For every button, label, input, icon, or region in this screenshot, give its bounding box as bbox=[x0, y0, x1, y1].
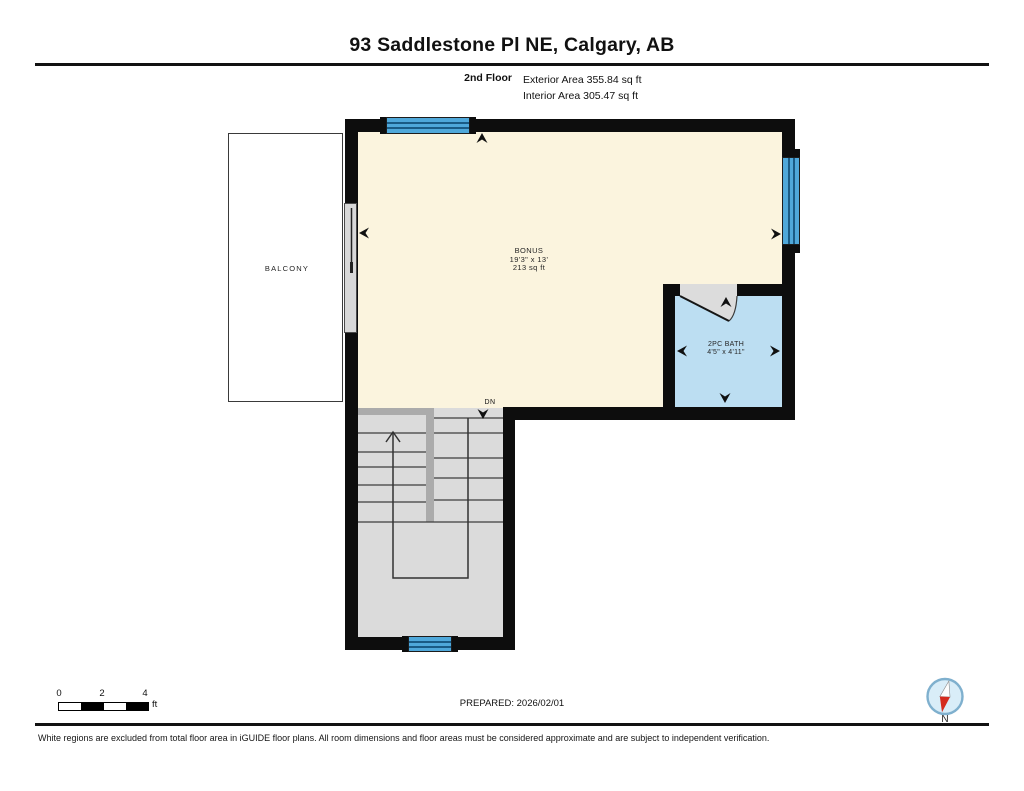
wall-segment bbox=[503, 407, 795, 420]
window-pane-line bbox=[788, 158, 790, 244]
page-title: 93 Saddlestone Pl NE, Calgary, AB bbox=[0, 34, 1024, 57]
bonus-room-label: BONUS 19'3" x 13' 213 sq ft bbox=[459, 247, 599, 273]
wall-segment bbox=[345, 119, 358, 650]
floor-plan-page: 93 Saddlestone Pl NE, Calgary, AB 2nd Fl… bbox=[0, 0, 1024, 791]
disclaimer-text: White regions are excluded from total fl… bbox=[38, 733, 998, 743]
compass-icon bbox=[922, 676, 968, 718]
room-area: 213 sq ft bbox=[459, 264, 599, 273]
window-frame bbox=[782, 245, 800, 253]
floor-name-label: 2nd Floor bbox=[0, 72, 512, 84]
exterior-area-label: Exterior Area 355.84 sq ft bbox=[523, 72, 641, 88]
prepared-date-label: PREPARED: 2026/02/01 bbox=[0, 698, 1024, 709]
window-pane-line bbox=[793, 158, 795, 244]
window-frame bbox=[452, 636, 458, 652]
balcony-label: BALCONY bbox=[227, 264, 347, 273]
window-pane-line bbox=[409, 641, 451, 643]
footer-divider bbox=[35, 723, 989, 726]
wall-segment bbox=[503, 420, 515, 650]
wall-segment bbox=[663, 284, 680, 296]
header-divider bbox=[35, 63, 989, 66]
window-frame bbox=[782, 149, 800, 157]
bath-room-label: 2PC BATH 4'5" x 4'11" bbox=[666, 341, 786, 357]
area-summary: Exterior Area 355.84 sq ft Interior Area… bbox=[523, 72, 641, 104]
window-pane-line bbox=[409, 646, 451, 648]
window bbox=[386, 117, 470, 134]
window-frame bbox=[470, 117, 476, 134]
wall-segment bbox=[737, 284, 782, 296]
window bbox=[408, 636, 452, 652]
stair-divider-wall bbox=[426, 408, 434, 522]
window bbox=[782, 157, 800, 245]
stairs-down-label: DN bbox=[478, 399, 502, 406]
window-pane-line bbox=[387, 127, 469, 129]
window-pane-line bbox=[387, 122, 469, 124]
bath-door-threshold bbox=[680, 284, 737, 296]
balcony-door bbox=[344, 203, 357, 333]
stair-half-wall bbox=[358, 408, 434, 415]
interior-area-label: Interior Area 305.47 sq ft bbox=[523, 88, 641, 104]
room-name: 2PC BATH bbox=[666, 341, 786, 349]
room-dimensions: 4'5" x 4'11" bbox=[666, 349, 786, 357]
